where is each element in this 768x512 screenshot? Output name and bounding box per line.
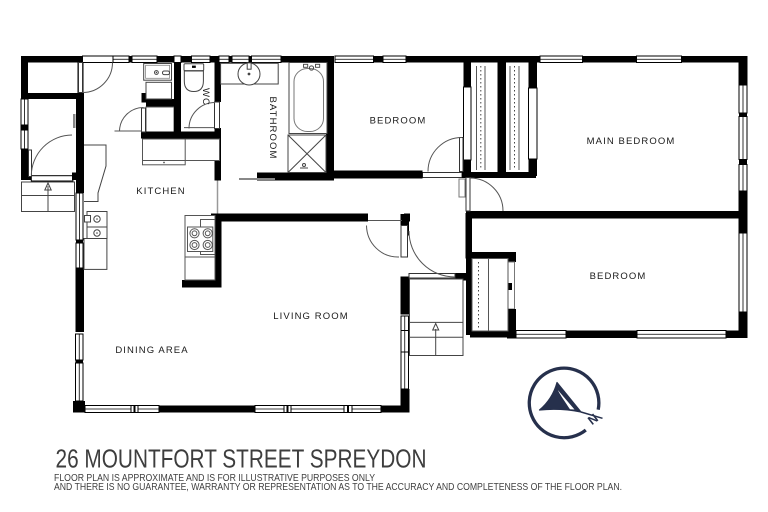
svg-text:WC: WC xyxy=(200,88,211,106)
svg-text:26 MOUNTFORT STREET SPREYDON: 26 MOUNTFORT STREET SPREYDON xyxy=(56,446,427,474)
svg-text:DINING AREA: DINING AREA xyxy=(115,345,188,356)
svg-text:KITCHEN: KITCHEN xyxy=(136,186,185,197)
svg-text:BATHROOM: BATHROOM xyxy=(267,97,278,160)
svg-text:BEDROOM: BEDROOM xyxy=(590,271,647,282)
svg-text:BEDROOM: BEDROOM xyxy=(370,116,427,127)
svg-text:MAIN BEDROOM: MAIN BEDROOM xyxy=(587,136,676,147)
svg-text:AND THERE IS NO GUARANTEE, WAR: AND THERE IS NO GUARANTEE, WARRANTY OR R… xyxy=(54,482,622,493)
svg-text:LIVING ROOM: LIVING ROOM xyxy=(273,311,348,322)
